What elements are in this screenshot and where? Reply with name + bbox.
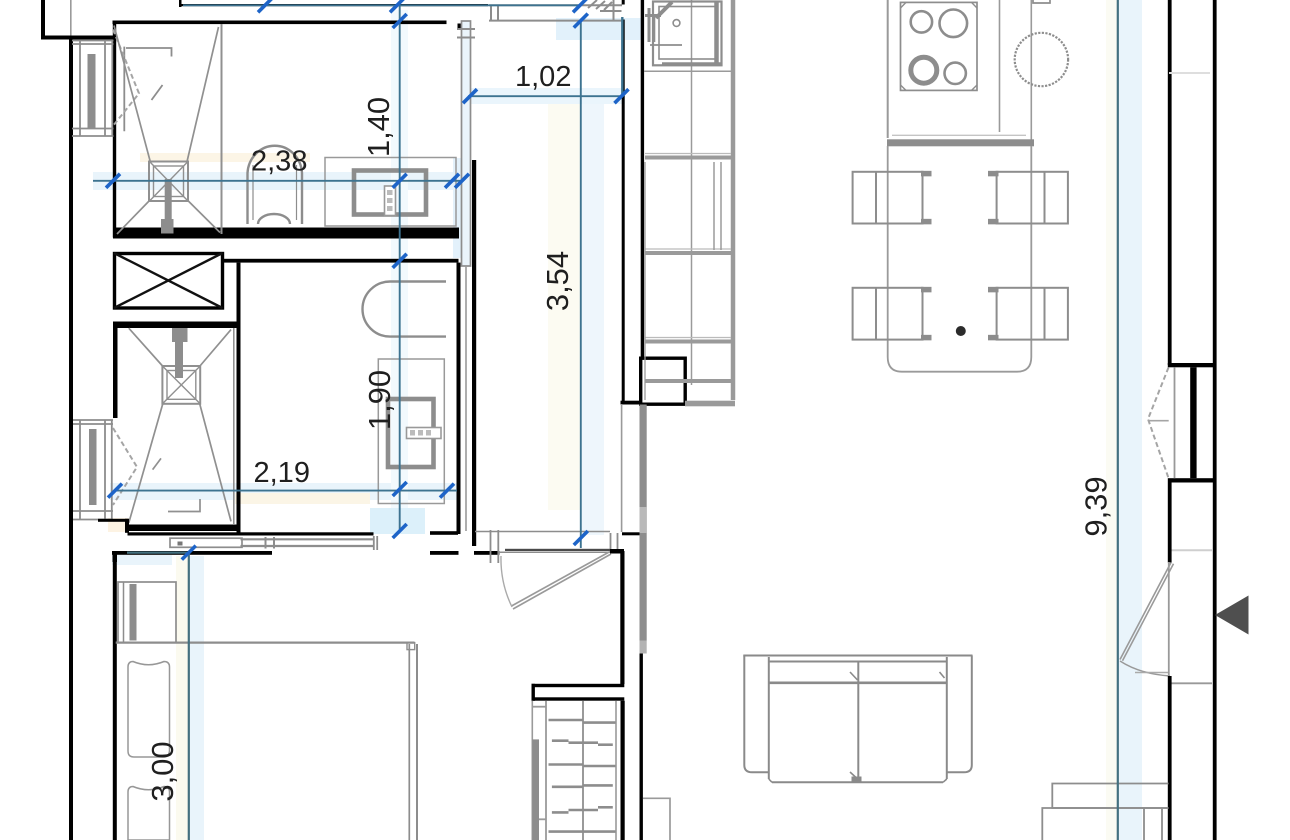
svg-text:2,38: 2,38 bbox=[251, 146, 307, 178]
svg-text:1,40: 1,40 bbox=[361, 97, 396, 157]
svg-text:3,00: 3,00 bbox=[145, 741, 180, 801]
svg-text:3,54: 3,54 bbox=[540, 251, 575, 311]
svg-text:2,19: 2,19 bbox=[254, 457, 310, 489]
svg-text:1,02: 1,02 bbox=[515, 61, 571, 93]
svg-text:9,39: 9,39 bbox=[1079, 476, 1114, 536]
svg-text:1,90: 1,90 bbox=[362, 370, 397, 430]
